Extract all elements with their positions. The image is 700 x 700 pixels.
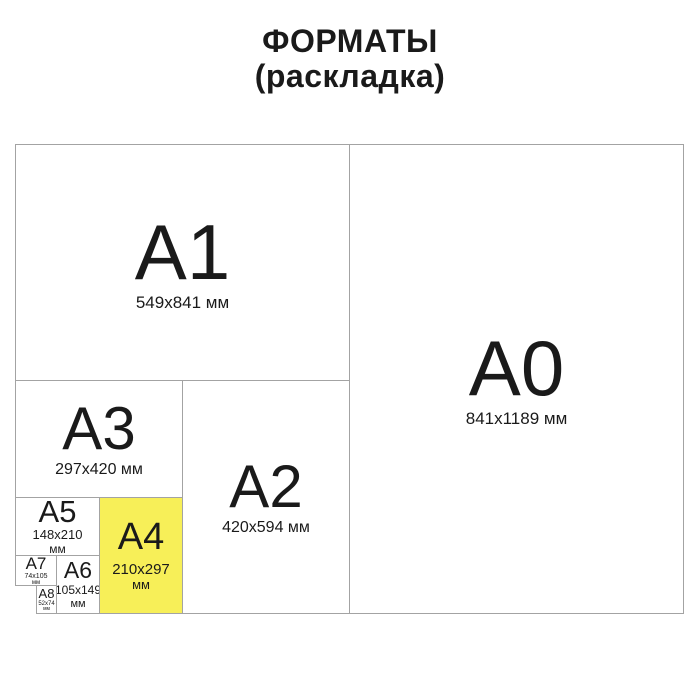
format-dimensions-a1: 549x841 мм <box>136 293 229 313</box>
format-label-a7: A7 <box>26 555 47 572</box>
format-label-a6: A6 <box>64 559 92 582</box>
format-cell-a6: A6 105x149 мм <box>56 555 100 614</box>
format-label-a5: A5 <box>39 497 77 527</box>
format-label-a4: A4 <box>118 518 164 556</box>
page-title: ФОРМАТЫ <box>0 24 700 59</box>
format-label-a3: A3 <box>62 399 135 459</box>
format-cell-a8: A8 52x74 мм <box>36 585 57 614</box>
format-cell-a3: A3 297x420 мм <box>15 380 183 498</box>
format-dimensions-a5: 148x210 <box>33 528 83 543</box>
format-dimensions-a6: 105x149 <box>56 584 100 598</box>
format-unit-a8: мм <box>43 607 50 612</box>
format-dimensions-a2: 420x594 мм <box>222 519 310 537</box>
format-cell-a0: A0 841x1189 мм <box>349 144 684 614</box>
page-subtitle: (раскладка) <box>0 59 700 94</box>
format-unit-a4: мм <box>132 578 150 593</box>
paper-formats-page: ФОРМАТЫ (раскладка) A1 549x841 мм A0 841… <box>0 0 700 700</box>
format-cell-a5: A5 148x210 мм <box>15 497 100 556</box>
format-dimensions-a7: 74x105 <box>25 573 48 580</box>
format-dimensions-a3: 297x420 мм <box>55 461 143 479</box>
format-unit-a6: мм <box>70 598 85 611</box>
page-title-block: ФОРМАТЫ (раскладка) <box>0 24 700 93</box>
format-cell-a7: A7 74x105 мм <box>15 555 57 586</box>
format-dimensions-a0: 841x1189 мм <box>466 409 568 429</box>
format-label-a2: A2 <box>229 457 302 517</box>
format-label-a1: A1 <box>135 213 230 291</box>
format-cell-a2: A2 420x594 мм <box>182 380 350 614</box>
format-dimensions-a4: 210x297 <box>112 561 170 578</box>
format-cell-a4-highlighted: A4 210x297 мм <box>99 497 183 614</box>
format-cell-a1: A1 549x841 мм <box>15 144 350 381</box>
format-label-a8: A8 <box>39 587 55 600</box>
format-label-a0: A0 <box>469 329 564 407</box>
